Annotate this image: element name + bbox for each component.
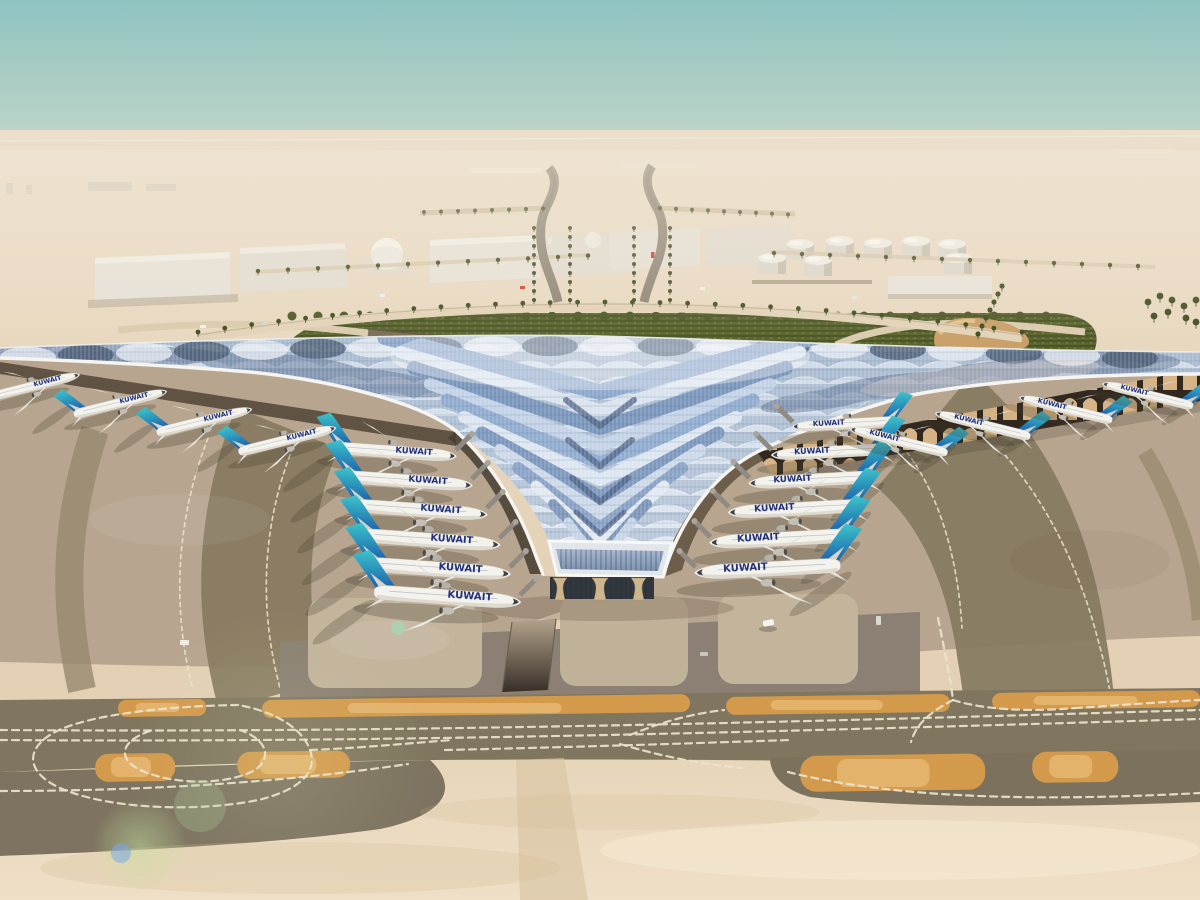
airline-title: KUWAIT: [812, 418, 845, 429]
airline-title: KUWAIT: [737, 531, 781, 544]
airline-title: KUWAIT: [794, 445, 831, 456]
airline-title: KUWAIT: [773, 474, 812, 486]
entrance-prow: [549, 541, 672, 600]
atmosphere-haze: [0, 150, 1200, 350]
aerial-render: KUWAITKUWAITKUWAITKUWAITKUWAITKUWAITKUWA…: [0, 0, 1200, 900]
airline-title: KUWAIT: [723, 562, 768, 575]
airport-scene: KUWAITKUWAITKUWAITKUWAITKUWAITKUWAITKUWA…: [0, 0, 1200, 900]
